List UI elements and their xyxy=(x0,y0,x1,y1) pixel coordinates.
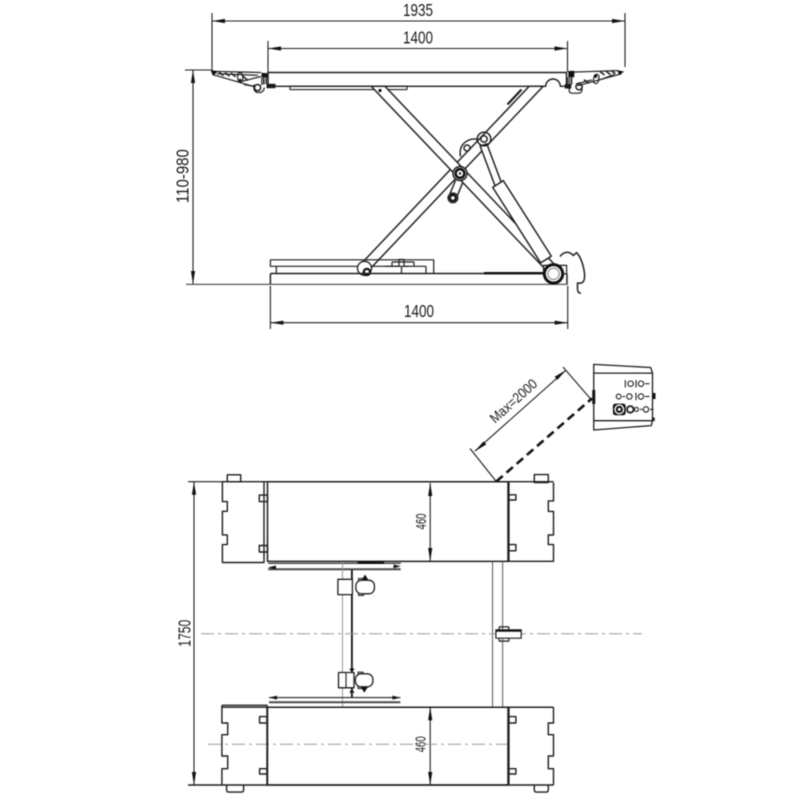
svg-text:1400: 1400 xyxy=(403,28,433,48)
svg-text:110-980: 110-980 xyxy=(172,149,192,203)
svg-text:1400: 1400 xyxy=(404,301,434,321)
svg-text:1935: 1935 xyxy=(403,0,433,20)
svg-text:460: 460 xyxy=(414,514,430,530)
svg-text:1750: 1750 xyxy=(174,620,194,647)
